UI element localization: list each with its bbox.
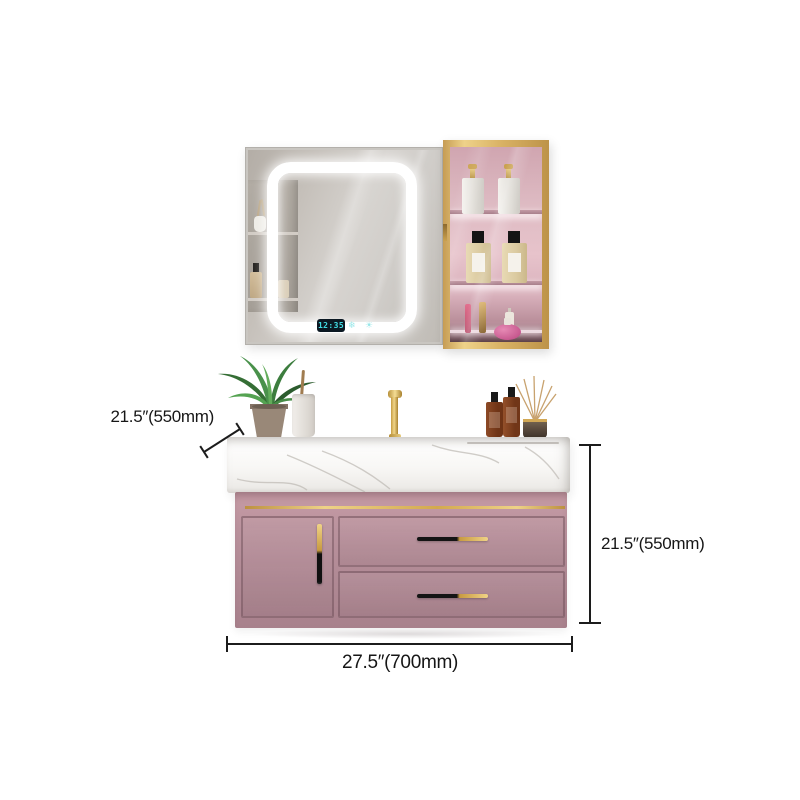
drawer-handle-top	[417, 537, 488, 541]
reed-diffuser	[512, 374, 560, 438]
marble-veins	[227, 437, 570, 493]
gold-faucet	[386, 390, 404, 440]
width-dimension-line	[226, 643, 573, 645]
height-dimension-cap-top	[579, 444, 601, 446]
drawer-top	[338, 516, 565, 567]
side-cabinet-door-handle	[443, 224, 447, 241]
mirror-side-cabinet	[443, 140, 549, 349]
reflected-soap-bottle	[250, 272, 262, 298]
clock-time: 12:35	[318, 321, 344, 330]
led-mirror: 12:35 ❄ ☀	[245, 147, 443, 345]
door-handle	[317, 524, 322, 584]
diffuser-reeds	[512, 374, 560, 424]
drawer-handle-bottom	[417, 594, 488, 598]
mirror-clock-display: 12:35	[317, 319, 345, 332]
marble-countertop	[227, 437, 570, 493]
width-dimension-label: 27.5″(700mm)	[285, 652, 515, 674]
height-dimension-label: 21.5″(550mm)	[601, 534, 705, 554]
side-cabinet-interior	[450, 147, 542, 342]
depth-dimension-marker	[194, 418, 250, 462]
vanity-product-image: 12:35 ❄ ☀	[0, 0, 800, 800]
defogger-icon: ❄	[348, 321, 356, 330]
diffuser-jar	[523, 419, 547, 438]
mirror-glass: 12:35 ❄ ☀	[248, 150, 440, 342]
width-dimension-cap-left	[226, 636, 228, 652]
gold-trim-strip	[245, 506, 565, 509]
reflected-reed	[261, 199, 266, 216]
temperature-icon: ☀	[365, 321, 373, 330]
reflected-diffuser-vase	[254, 216, 266, 232]
soap-dispenser	[486, 402, 503, 437]
width-dimension-cap-right	[571, 636, 573, 652]
cabinet-shadow	[250, 629, 560, 639]
led-light-ring	[267, 162, 417, 333]
sink-basin-edge	[467, 442, 559, 444]
height-dimension-line	[589, 444, 591, 624]
toiletry-cup	[292, 394, 315, 437]
vanity-cabinet	[235, 492, 567, 628]
height-dimension-cap-bottom	[579, 622, 601, 624]
faucet-body	[391, 397, 398, 435]
glass-door-sheen	[450, 147, 542, 342]
